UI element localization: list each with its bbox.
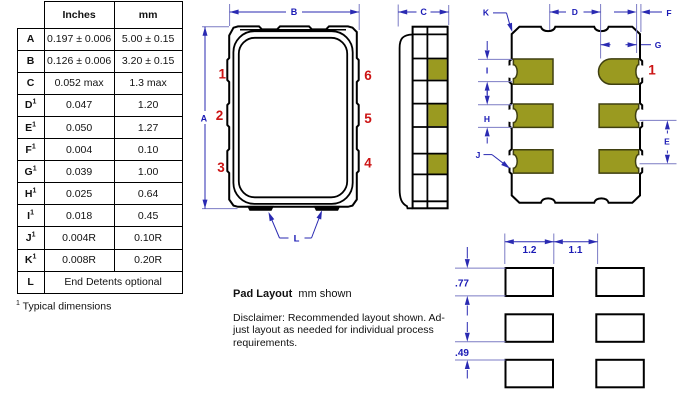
svg-text:1: 1 [219, 67, 227, 82]
svg-text:3: 3 [217, 160, 225, 175]
svg-text:I: I [486, 66, 488, 76]
svg-text:F: F [666, 8, 671, 18]
svg-text:B: B [291, 7, 298, 17]
svg-text:6: 6 [364, 68, 372, 83]
svg-text:.77: .77 [455, 279, 469, 290]
svg-text:4: 4 [364, 156, 372, 171]
svg-text:E: E [664, 137, 670, 147]
svg-text:G: G [655, 40, 662, 50]
svg-text:D: D [572, 7, 578, 17]
svg-text:2: 2 [216, 108, 224, 123]
svg-text:J: J [476, 150, 481, 160]
svg-text:H: H [484, 114, 490, 124]
svg-text:1.2: 1.2 [523, 245, 537, 256]
svg-text:1.1: 1.1 [569, 245, 583, 256]
svg-text:.49: .49 [455, 348, 469, 359]
svg-text:L: L [294, 233, 300, 244]
svg-text:K: K [483, 8, 490, 18]
svg-text:5: 5 [364, 111, 372, 126]
svg-text:A: A [201, 113, 208, 123]
svg-text:1: 1 [648, 63, 656, 78]
svg-text:C: C [420, 7, 427, 17]
